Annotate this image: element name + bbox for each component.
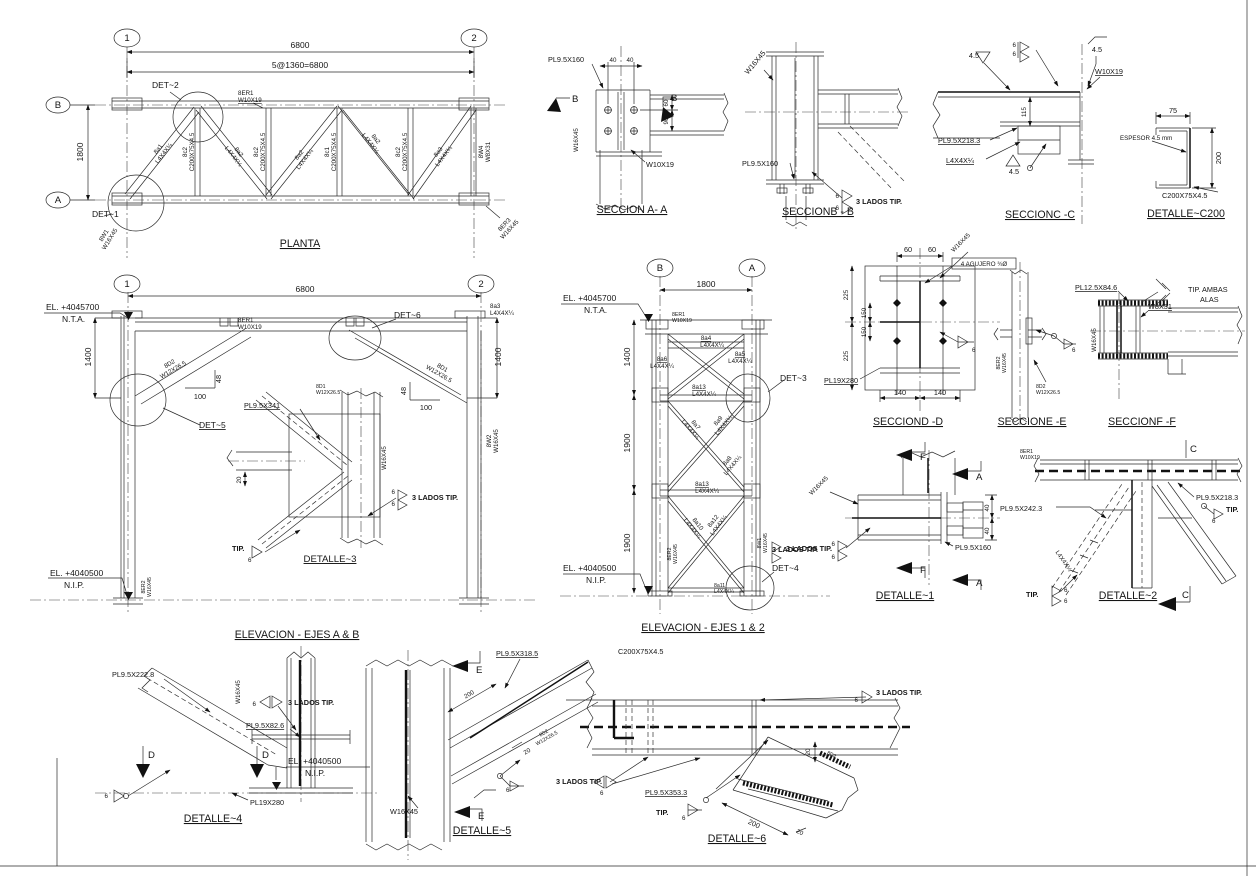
ab-det3-w16x45: W16X45	[381, 446, 388, 470]
d4-pl19x280: PL19X280	[250, 798, 284, 807]
ab-8er1-size: W10X19	[238, 324, 262, 331]
view-detalle-c200: 75 200 ESPESOR 4.5 mm C200X75X4.5 DETALL…	[1120, 106, 1225, 220]
d5-dim200: 200	[463, 689, 476, 701]
e12-nta: N.T.A.	[584, 305, 607, 315]
detalle-4-title: DETALLE~4	[184, 813, 243, 825]
d6-dim200: 200	[747, 817, 762, 830]
cc-weld45-1: 4.5	[969, 51, 979, 60]
svg-text:8c1: 8c1	[324, 146, 331, 157]
d5-pl3185: PL9.5X318.5	[496, 649, 538, 658]
aa-dim90: 90	[663, 117, 670, 124]
dd-dim60-1: 60	[904, 245, 912, 254]
aa-sec-b-left: B	[572, 94, 578, 105]
cc-weld45-2: 4.5	[1092, 45, 1102, 54]
detalle-1-title: DETALLE~1	[876, 590, 935, 602]
aa-sec-b-right: B	[671, 93, 677, 104]
e12-el-bot: EL. +4040500	[563, 563, 616, 573]
detalle-2-title: DETALLE~2	[1099, 590, 1158, 602]
view-elevacion-12: B A 1800 EL. +4045700 N.T.A. 8ER1 W10X19…	[560, 259, 832, 634]
c200-dim200: 200	[1214, 152, 1223, 164]
ab-slope48-r: 48	[399, 387, 408, 395]
seccion-ff-title: SECCIONF -F	[1108, 416, 1176, 428]
ab-el-bot: EL. +4040500	[50, 568, 103, 578]
bb-lados: 3 LADOS TIP.	[856, 197, 902, 206]
e12-8a8-label: 8a8 L4X4X¼	[717, 449, 744, 477]
d2-angle: L4X4X¼	[1054, 549, 1074, 573]
ab-nta: N.T.A.	[62, 314, 85, 324]
ab-weld6-2: 6	[392, 501, 396, 508]
planta-member-8c2-3: 8c2 C200X75X4.5	[395, 132, 409, 171]
detalle-5-title: DETALLE~5	[453, 825, 512, 837]
ab-pl341: PL9.5X341	[244, 401, 280, 410]
d2-tip-1: TIP.	[1226, 505, 1238, 514]
e12-dim1400: 1400	[622, 347, 632, 366]
d2-weld6-3: 6	[1064, 598, 1068, 605]
planta-det2-label: DET~2	[152, 80, 179, 90]
d2-weld6-1: 6	[1212, 518, 1216, 525]
planta-title: PLANTA	[280, 238, 321, 250]
e12-8a7-label: 8a7 L4X4X¼	[680, 414, 707, 442]
ab-tip: TIP.	[232, 544, 244, 553]
d1-pl95x160: PL9.5X160	[955, 543, 991, 552]
ab-8er2-label: 8ER2 W16X45	[141, 577, 153, 597]
dd-dim225-1: 225	[843, 289, 850, 300]
d1-weld6-1: 6	[832, 541, 836, 548]
view-detalle-4: PL9.5X222.8 W16X45 6 3 LADOS TIP. PL9.5X…	[95, 646, 380, 825]
d6-weld6-2: 6	[600, 790, 604, 797]
d4-pl826: PL9.5X82.6	[246, 721, 284, 730]
svg-text:C200X75X4.5: C200X75X4.5	[260, 132, 267, 171]
e12-8a13-mark-2: 8a13	[695, 481, 709, 488]
svg-text:8c2: 8c2	[253, 146, 260, 157]
view-seccion-ee: 8ER2 W16X45 8D2 W12X26.5 6 SECCIONE -E	[994, 262, 1076, 428]
d1-sec-a-top: A	[976, 472, 983, 483]
ff-tip-ambas-2: ALAS	[1200, 295, 1219, 304]
d2-sec-c-top: C	[1190, 444, 1197, 455]
cad-drawing: 1 2 B A 6800 5@1360=6800 1800 DET~2 DET~…	[0, 0, 1256, 876]
view-detalle-2: 8ER1 W10X19 C PL9.5X218.3 PL9.5X242.3 TI…	[1000, 440, 1243, 611]
dd-dim150-1: 150	[861, 307, 868, 318]
e12-8er1-size: W10X19	[672, 318, 692, 324]
planta-8er1-size: W10X19	[238, 97, 262, 104]
bb-weld6-1: 6	[836, 193, 840, 200]
d1-sec-f-top: F	[920, 452, 926, 463]
ee-weld6: 6	[1072, 347, 1076, 354]
c200-size: C200X75X4.5	[1162, 191, 1207, 200]
svg-text:8W2: 8W2	[486, 434, 493, 447]
planta-member-8w4: 8W4 W8X31	[478, 141, 492, 162]
svg-text:W16X45: W16X45	[763, 533, 769, 553]
ff-tip-ambas-1: TIP. AMBAS	[1188, 285, 1228, 294]
aa-dim40-2: 40	[627, 57, 634, 64]
view-seccion-ff: PL12.5X84.6 TIP. AMBAS ALAS W8X31 W16X45…	[1075, 279, 1245, 428]
planta-grid-bubble-1: 1	[124, 33, 129, 44]
ab-slope100-r: 100	[420, 403, 432, 412]
cc-weld45-3: 4.5	[1009, 167, 1019, 176]
d4-el-bot: EL. +4040500	[288, 756, 341, 766]
cc-weld6-1: 6	[1013, 42, 1017, 49]
svg-text:W16X45: W16X45	[147, 577, 153, 597]
planta-member-8a2-3: 8a2 L4X4X¼	[360, 128, 386, 156]
d6-pl3533: PL9.5X353.3	[645, 788, 687, 797]
d5-weld6: 6	[506, 787, 510, 794]
aa-w10x19: W10X19	[646, 160, 674, 169]
svg-text:8c2: 8c2	[395, 146, 402, 157]
ab-8w2-label: 8W2 W16X45	[486, 429, 500, 453]
cc-angle: L4X4X¼	[946, 156, 975, 165]
e12-8a6-size: L4X4X¼	[650, 363, 675, 370]
aa-dim60: 60	[663, 99, 670, 106]
e12-8a13-size-1: L4X4X¼	[692, 391, 717, 398]
dd-dim225-2: 225	[843, 350, 850, 361]
ab-8a3-size: L4X4X¼	[490, 310, 515, 317]
planta-member-8er3: 8ER3 W16X45	[494, 213, 521, 240]
ab-8d2-label: 8D2 W12X26.5	[155, 354, 188, 381]
planta-member-8a1: 8a1 L4X4X¼	[148, 137, 174, 165]
detalle-c200-title: DETALLE~C200	[1147, 208, 1225, 220]
e12-8a4-mark: 8a4	[701, 335, 712, 342]
d1-lados: 3 LADOS TIP.	[772, 545, 818, 554]
cc-weld6-2: 6	[1013, 51, 1017, 58]
elevacion-ab-title: ELEVACION - EJES A & B	[235, 629, 360, 641]
e12-dim1900-1: 1900	[622, 433, 632, 452]
ab-det5: DET~5	[199, 420, 226, 430]
d1-sec-a-bot: A	[976, 578, 983, 589]
dd-agujero: 4 AGUJERO ¾Ø	[961, 261, 1008, 268]
detalle-3-title: DETALLE~3	[304, 554, 357, 565]
svg-text:W16X45: W16X45	[1002, 353, 1008, 373]
view-seccion-dd: 60 60 W16X45 4 AGUJERO ¾Ø 225 150 150 22…	[824, 232, 1016, 428]
detalle-6-title: DETALLE~6	[708, 833, 767, 845]
d4-weld6-2: 6	[105, 793, 109, 800]
d4-sec-d-left: D	[148, 750, 155, 761]
ab-slope48-l: 48	[214, 375, 223, 383]
planta-member-8c1: 8c1 C200X75X4.5	[324, 132, 338, 171]
dd-pl19x280: PL19X280	[824, 376, 858, 385]
d5-sec-e-top: E	[476, 665, 482, 676]
seccion-dd-title: SECCIOND -D	[873, 416, 943, 428]
ff-w16x45: W16X45	[1091, 328, 1098, 352]
seccion-cc-title: SECCIONC -C	[1005, 209, 1075, 221]
svg-text:W16X45: W16X45	[673, 544, 679, 564]
e12-grid-b: B	[657, 263, 663, 274]
dd-dim140-1: 140	[894, 388, 906, 397]
d6-lados-right: 3 LADOS TIP.	[876, 688, 922, 697]
svg-text:W8X31: W8X31	[485, 141, 492, 162]
view-detalle-5: PL9.5X318.5 E 200 8D2 W12X26.5 20 6 W16X…	[366, 649, 598, 860]
d4-w16x45: W16X45	[235, 680, 242, 704]
e12-nip: N.I.P.	[586, 575, 606, 585]
e12-dim1900-2: 1900	[622, 533, 632, 552]
d4-pl2228: PL9.5X222.8	[112, 670, 154, 679]
d6-weld6-3: 6	[682, 815, 686, 822]
e12-grid-a: A	[749, 263, 756, 274]
dd-weld6: 6	[972, 347, 976, 354]
e12-8a5-mark: 8a5	[735, 351, 746, 358]
planta-det1-label: DET~1	[92, 209, 119, 219]
d4-sec-d-right: D	[262, 750, 269, 761]
planta-member-8a3: 8a3 L4X4X¼	[428, 140, 454, 168]
ab-grid-1: 1	[124, 279, 129, 290]
d1-w16x45: W16X45	[808, 475, 830, 497]
view-planta: 1 2 B A 6800 5@1360=6800 1800 DET~2 DET~…	[46, 29, 521, 258]
bb-pl95x160: PL9.5X160	[742, 159, 778, 168]
d6-lados-left: 3 LADOS TIP.	[556, 777, 602, 786]
ab-el-top: EL. +4045700	[46, 302, 99, 312]
view-elevacion-ab: EL. +4045700 N.T.A. 6800 1 2 DET~6 8ER1 …	[30, 0, 561, 641]
view-detalle-1: W16X45 F A F A 40 40 PL9.5X160 3 LADOS T…	[772, 442, 1000, 602]
ab-8er1-mark: 8ER1	[238, 317, 254, 324]
cc-dim115: 115	[1021, 107, 1028, 117]
c200-dim75: 75	[1169, 106, 1177, 115]
ab-weld6-1: 6	[392, 489, 396, 496]
e12-det3: DET~3	[780, 373, 807, 383]
planta-8er1-mark: 8ER1	[238, 90, 254, 97]
view-seccion-aa: PL9.5X160 40 40 60 90 B B W16X45 W10X19 …	[547, 46, 728, 216]
planta-member-8w1: 8W1 W16X45	[95, 223, 120, 251]
d6-c200: C200X75X4.5	[618, 647, 663, 656]
elevacion-12-title: ELEVACION - EJES 1 & 2	[641, 622, 765, 634]
e12-8a10-label: 8a10 L4X4X¼	[682, 513, 708, 541]
svg-text:W16X45: W16X45	[493, 429, 500, 453]
d2-8er1-size: W10X19	[1020, 455, 1040, 461]
ab-8d1-label: 8D1 W12X26.5	[424, 358, 457, 385]
d2-sec-c-bot: C	[1182, 590, 1189, 601]
e12-8w1-label: 8W1 W16X45	[757, 533, 769, 553]
cc-pl95x2183: PL9.5X218.3	[938, 136, 980, 145]
ff-w8x31: W8X31	[1148, 302, 1172, 311]
ab-slope100-l: 100	[194, 392, 206, 401]
planta-member-8a2-2: 8a2 L4X4X¼	[289, 143, 315, 171]
d4-lados: 3 LADOS TIP.	[288, 698, 334, 707]
cc-w10x19: W10X19	[1095, 67, 1123, 76]
view-detalle-6: C200X75X4.5 3 LADOS TIP. 6 20 8D2 3 LADO…	[556, 647, 922, 845]
e12-8a13-mark-1: 8a13	[692, 384, 706, 391]
d5-dim20: 20	[523, 747, 533, 757]
seccion-ee-title: SECCIONE -E	[998, 416, 1067, 428]
dd-dim140-2: 140	[934, 388, 946, 397]
d1-dim40-1: 40	[984, 504, 991, 511]
d6-dim20-1: 20	[805, 748, 812, 755]
planta-dim-1800: 1800	[75, 142, 85, 161]
ee-8er2-label: 8ER2 W16X45	[996, 353, 1008, 373]
e12-8a4-size: L4X4X¼	[700, 342, 725, 349]
e12-8a13-size-2: L4X4X¼	[695, 488, 720, 495]
svg-text:C200X75X4.5: C200X75X4.5	[331, 132, 338, 171]
ab-dim1400-r: 1400	[493, 347, 503, 366]
ab-8a3-mark: 8a3	[490, 303, 501, 310]
svg-text:8W4: 8W4	[478, 145, 485, 158]
svg-text:C200X75X4.5: C200X75X4.5	[189, 132, 196, 171]
ff-pl125: PL12.5X84.6	[1075, 283, 1117, 292]
aa-dim40-1: 40	[610, 57, 617, 64]
e12-el-top: EL. +4045700	[563, 293, 616, 303]
aa-w16x45: W16X45	[573, 128, 580, 152]
dd-dim60-2: 60	[928, 245, 936, 254]
ab-lados: 3 LADOS TIP.	[412, 493, 458, 502]
ab-weld6-3: 6	[248, 557, 252, 564]
seccion-bb-title: SECCIONB - B	[782, 206, 854, 218]
planta-dim-6800: 6800	[291, 40, 310, 50]
d5-sec-e-bot: E	[478, 811, 484, 822]
d1-weld6-2: 6	[832, 554, 836, 561]
d2-weld6-2: 6	[1064, 587, 1068, 594]
e12-8a6-mark: 8a6	[657, 356, 668, 363]
ee-8d2-size: W12X26.5	[1036, 390, 1060, 396]
aa-pl95x160: PL9.5X160	[548, 55, 584, 64]
view-seccion-cc: 4.5 6 6 4.5 4.5 W10X19 115 PL9.5X218.3 L…	[933, 37, 1123, 224]
dd-dim150-2: 150	[861, 326, 868, 337]
d6-weld6-1: 6	[855, 697, 859, 704]
seccion-aa-title: SECCION A- A	[597, 204, 669, 216]
dd-w16x45: W16X45	[950, 232, 972, 254]
d4-nip: N.I.P.	[305, 768, 325, 778]
e12-8a11-size: L4X4X¼	[714, 589, 735, 595]
c200-espesor: ESPESOR 4.5 mm	[1120, 135, 1172, 142]
svg-text:8c2: 8c2	[182, 146, 189, 157]
view-seccion-bb: W16X45 PL9.5X160 6 6 3 LADOS TIP. SECCIO…	[742, 42, 908, 232]
planta-grid-bubble-a: A	[55, 195, 62, 206]
ab-dim20: 20	[236, 476, 243, 483]
d2-pl218: PL9.5X218.3	[1196, 493, 1238, 502]
e12-det4: DET~4	[772, 563, 799, 573]
ab-nip: N.I.P.	[64, 580, 84, 590]
e12-8a5-size: L4X4X¼	[728, 358, 753, 365]
planta-grid-bubble-b: B	[55, 100, 61, 111]
ab-dim1400-l: 1400	[83, 347, 93, 366]
ab-det6: DET~6	[394, 310, 421, 320]
ab-dim6800: 6800	[296, 284, 315, 294]
e12-dim1800: 1800	[697, 279, 716, 289]
planta-member-8c2-2: 8c2 C200X75X4.5	[253, 132, 267, 171]
d5-w16x45: W16X45	[390, 807, 418, 816]
ab-8d1-small-size: W12X26.5	[316, 390, 340, 396]
d6-tip: TIP.	[656, 808, 668, 817]
planta-member-8a2-1: 8a2 L4X4X¼	[223, 141, 249, 169]
svg-text:C200X75X4.5: C200X75X4.5	[402, 132, 409, 171]
d4-weld6-1: 6	[253, 701, 257, 708]
d1-dim40-2: 40	[984, 527, 991, 534]
d1-sec-f-bot: F	[920, 565, 926, 576]
planta-grid-bubble-2: 2	[471, 33, 476, 44]
cad-sheet: 1 2 B A 6800 5@1360=6800 1800 DET~2 DET~…	[0, 0, 1256, 876]
d2-tip-2: TIP.	[1026, 590, 1038, 599]
e12-8er2-label: 8ER2 W16X45	[667, 544, 679, 564]
bb-w16x45: W16X45	[743, 49, 768, 76]
d2-pl242: PL9.5X242.3	[1000, 504, 1042, 513]
planta-dim-panels: 5@1360=6800	[272, 60, 328, 70]
ab-grid-2: 2	[478, 279, 483, 290]
